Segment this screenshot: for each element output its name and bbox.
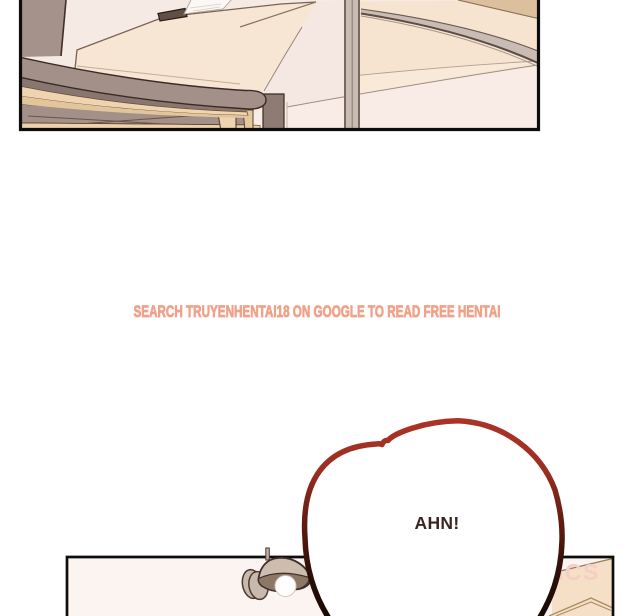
- svg-text:SEARCH TRUYENHENTAI18 ON GOOGL: SEARCH TRUYENHENTAI18 ON GOOGLE TO READ …: [134, 303, 501, 321]
- svg-text:ICS: ICS: [557, 559, 600, 585]
- svg-text:AHN!: AHN!: [415, 513, 460, 533]
